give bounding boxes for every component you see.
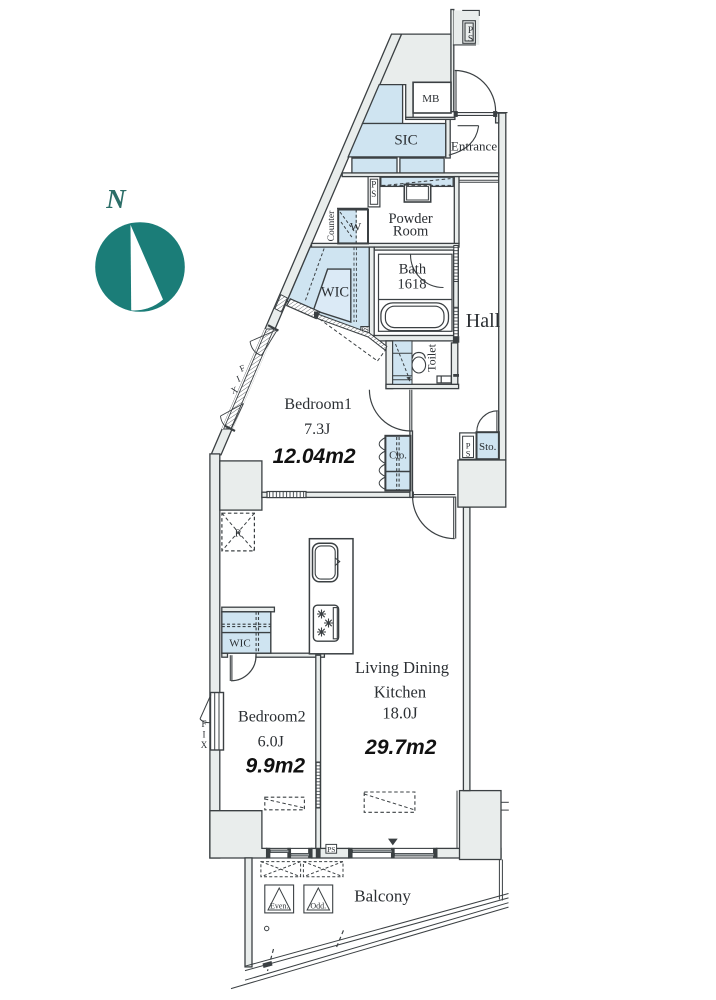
svg-text:WIC: WIC (229, 638, 250, 650)
svg-text:R: R (235, 529, 242, 540)
svg-text:1618: 1618 (398, 277, 427, 293)
svg-text:S: S (466, 449, 471, 459)
svg-text:Counter: Counter (327, 210, 337, 241)
svg-text:N: N (105, 184, 127, 214)
svg-text:Sto.: Sto. (479, 441, 497, 453)
svg-text:18.0J: 18.0J (382, 704, 418, 723)
svg-text:Even.: Even. (270, 902, 288, 911)
svg-text:Entrance: Entrance (451, 139, 497, 154)
svg-text:PS: PS (361, 327, 369, 334)
svg-text:Living Dining: Living Dining (355, 658, 449, 677)
svg-text:WIC: WIC (321, 285, 349, 301)
svg-text:Toilet: Toilet (425, 343, 439, 371)
svg-text:Odd.: Odd. (310, 902, 326, 911)
svg-text:Bedroom2: Bedroom2 (238, 709, 306, 726)
svg-text:29.7m2: 29.7m2 (364, 736, 437, 759)
svg-text:Kitchen: Kitchen (374, 683, 426, 702)
svg-text:12.04m2: 12.04m2 (273, 445, 356, 468)
svg-text:MB: MB (422, 93, 439, 105)
svg-text:Bedroom1: Bedroom1 (284, 396, 352, 413)
svg-text:X: X (201, 740, 208, 750)
svg-text:I: I (203, 730, 206, 740)
svg-text:Balcony: Balcony (354, 887, 411, 906)
svg-text:S: S (371, 189, 376, 199)
svg-text:S: S (468, 35, 473, 45)
svg-text:SIC: SIC (394, 133, 417, 149)
svg-text:6.0J: 6.0J (258, 734, 284, 751)
svg-text:F: F (238, 363, 247, 374)
svg-text:Hall: Hall (466, 310, 501, 332)
svg-text:I: I (235, 374, 242, 384)
svg-text:9.9m2: 9.9m2 (246, 755, 306, 778)
svg-text:Bath: Bath (399, 262, 427, 278)
svg-text:F: F (201, 719, 206, 729)
svg-text:Room: Room (393, 224, 429, 240)
svg-text:7.3J: 7.3J (304, 421, 330, 438)
svg-text:Clo.: Clo. (389, 451, 407, 462)
svg-text:P: P (371, 180, 376, 190)
svg-text:PS: PS (327, 845, 335, 854)
svg-text:W: W (350, 220, 362, 234)
